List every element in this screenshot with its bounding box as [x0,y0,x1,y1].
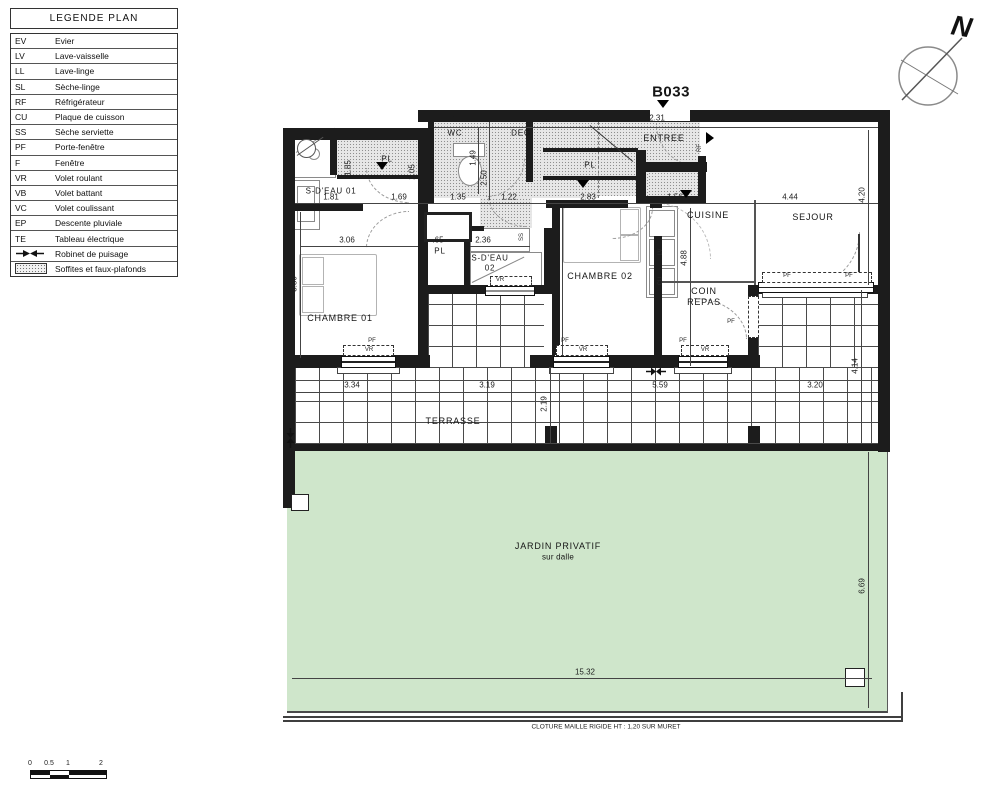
dim-label: 3.20 [807,381,823,390]
vr-shutter-sejour-bay [762,272,872,283]
dim-line [295,203,878,204]
vent-triangle-icon [376,162,388,170]
wall-right [878,110,890,452]
north-compass-icon: N [888,6,992,110]
vr-tag: VR [365,347,373,353]
wall-left [283,128,295,508]
scale-tick: 1 [66,760,70,767]
dim-line [434,127,878,128]
robinet-icon [11,249,55,258]
window-sill [674,367,732,374]
legend-row: PFPorte-fenêtre [11,140,177,155]
dim-label: 3.06 [339,236,355,245]
post [545,426,557,443]
wall [330,128,337,175]
room-label-chambre01: CHAMBRE 01 [307,313,373,323]
legend-row: VBVolet battant [11,186,177,201]
legend-row: SLSèche-linge [11,80,177,95]
legend-row: CUPlaque de cuisson [11,110,177,125]
pf-tag: PF [727,319,735,325]
scale-bar: 0 0.5 1 2 [26,760,116,784]
legend-row: EVEvier [11,34,177,49]
legend-abbr: EV [11,36,55,46]
vent-triangle-icon [577,180,589,188]
window-coin-repas [678,356,728,368]
pillow [302,257,324,285]
terrasse-tiles [295,368,878,444]
legend-abbr: VB [11,188,55,198]
legend-abbr: EP [11,218,55,228]
pf-tag: PF [679,338,687,344]
dim-line [868,130,869,285]
dim-label: 2.36 [475,236,491,245]
vent-triangle-icon [680,190,692,198]
hatch-icon [11,263,55,274]
dim-line [562,208,563,355]
legend-abbr: LV [11,51,55,61]
dim-line [550,368,551,444]
room-label-chambre02: CHAMBRE 02 [567,271,633,281]
vent-triangle-icon [706,132,714,144]
niche-box [424,212,472,242]
wall-coin-repas-right-a [748,285,758,296]
fence-line [283,720,903,722]
legend-row: VCVolet coulissant [11,201,177,216]
legend-abbr: SS [11,127,55,137]
dim-label: 3.34 [344,381,360,390]
window-sill [337,367,400,374]
legend-row: VRVolet roulant [11,171,177,186]
door-arc-chambre01 [366,211,409,248]
legend-row: LVLave-vaisselle [11,49,177,64]
legend-abbr: F [11,158,55,168]
room-label-wc: WC [448,129,463,138]
legend-row: SSSèche serviette [11,125,177,140]
pf-tag: PF [561,338,569,344]
legend-abbr: VC [11,203,55,213]
compass-north-label: N [949,9,975,43]
wall-thin-coin-sejour [754,200,756,285]
pillow [620,235,639,261]
pl-label: PL [584,161,595,170]
legend-row: Soffites et faux-plafonds [11,262,177,276]
wall-chambre02-left [552,208,560,355]
dim-label: 6.69 [858,578,867,594]
legend-row: FFenêtre [11,156,177,171]
room-label-sdeau01: S-D'EAU 01 [306,187,357,196]
vr-tag: VR [579,347,587,353]
dim-label: 3.19 [479,381,495,390]
legend-label: Volet battant [55,188,102,198]
pf-tag: PF [845,273,853,279]
dim-label: 4.14 [851,358,860,374]
legend-abbr: VR [11,173,55,183]
wall-terrasse-edge [283,444,890,451]
fence-line [901,692,903,721]
dim-line [861,290,862,444]
wall-thin-cuisine [660,281,755,283]
dim-label: 1.30 [444,114,460,123]
dim-line [295,392,878,393]
legend-label: Volet coulissant [55,203,114,213]
dim-label: 2.19 [540,396,549,412]
dim-line [489,122,490,200]
legend-label: Lave-vaisselle [55,51,109,61]
dim-label: 1.22 [501,193,517,202]
wall [543,148,638,152]
legend-label: Réfrigérateur [55,97,105,107]
wall-chambre02-right [654,236,662,368]
room-label-sdeau02: S-D'EAU [471,254,508,263]
fence-note: CLOTURE MAILLE RIGIDE HT : 1,20 SUR MURE… [531,724,680,731]
window-chambre01 [341,356,396,368]
dim-line [292,678,872,679]
scale-tick: 0.5 [44,760,54,767]
wall [543,176,638,180]
wall-coin-repas-right-b [748,336,758,368]
dim-label: 3.80 [290,276,299,292]
window-sill [549,367,614,374]
dim-line [868,452,869,708]
terrasse-tiles-middle [428,292,544,368]
dim-label: 1.49 [469,150,478,166]
legend-abbr: SL [11,82,55,92]
legend-row: Robinet de puisage [11,247,177,262]
dim-label: 4.20 [858,187,867,203]
legend-title: LEGENDE PLAN [10,8,178,29]
dim-label: 3.45 [535,114,551,123]
scale-tick: 0 [28,760,32,767]
window-sejour-bay [758,282,874,293]
entrance-marker-icon [657,100,669,108]
dim-line [300,212,301,358]
scale-bar-strip [30,770,107,779]
dim-label: 2.05 [408,164,417,180]
dim-label: .65 [432,236,443,245]
legend-label: Soffites et faux-plafonds [55,264,146,274]
dim-line [470,246,530,247]
legend-label: Sèche-linge [55,82,100,92]
wall [698,156,706,204]
wall [283,355,343,368]
legend-label: Sèche serviette [55,127,114,137]
legend-table: EVEvier LVLave-vaisselle LLLave-linge SL… [10,33,178,277]
post [748,426,760,443]
pf-tag: PF [783,273,791,279]
legend-row: TETableau électrique [11,231,177,246]
appliance-ss: SS [519,233,525,241]
window-chambre02 [553,356,610,368]
scale-tick: 2 [99,760,103,767]
pf-door-coin-repas-side [748,296,759,338]
legend-label: Volet roulant [55,173,102,183]
legend-label: Fenêtre [55,158,84,168]
wall [650,200,662,208]
dim-label: 15.32 [575,668,595,677]
appliance-lv: LV [658,249,664,256]
legend-row: LLLave-linge [11,64,177,79]
room-label-terrasse: TERRASSE [426,416,481,426]
robinet-puisage-icon [286,428,295,448]
pf-tag: PF [368,338,376,344]
room-label-jardin-sub: sur dalle [542,553,574,562]
wall [640,162,707,172]
dim-label: 2.31 [649,114,665,123]
room-label-repas: REPAS [687,297,721,307]
room-label-cuisine: CUISINE [687,210,729,220]
dim-label: 1.85 [344,160,353,176]
pl-label: PL [434,247,445,256]
legend-label: Porte-fenêtre [55,142,105,152]
room-label-deg: DEG [511,129,531,138]
legend-label: Evier [55,36,74,46]
dim-label: 5.20 [551,242,560,258]
legend-label: Robinet de puisage [55,249,128,259]
vr-tag: VR [701,347,709,353]
legend-label: Descente pluviale [55,218,122,228]
pillow [302,286,324,313]
appliance-cu: CU [658,277,664,286]
window-sdeau02 [485,286,535,296]
wall-chambre01-right [418,140,428,368]
wall [418,285,488,294]
room-label-sdeau02-num: 02 [485,264,496,273]
legend-abbr: LL [11,66,55,76]
wall-wc-left [428,122,434,204]
wall-sdeau02-right [544,228,552,290]
dim-label: 4.44 [782,193,798,202]
legend-label: Tableau électrique [55,234,124,244]
plan-id-label: B033 [652,84,690,101]
ep-box [291,494,309,511]
terrasse-tiles-right [758,294,878,368]
vr-tag: VR [496,277,504,283]
dim-line [300,246,418,247]
legend-panel: LEGENDE PLAN EVEvier LVLave-vaisselle LL… [10,8,178,277]
legend-label: Plaque de cuisson [55,112,124,122]
legend-abbr: RF [11,97,55,107]
dim-label: 4.49 [780,114,796,123]
dim-label: 1.35 [450,193,466,202]
legend-row: EPDescente pluviale [11,216,177,231]
room-label-sejour: SEJOUR [792,212,833,222]
legend-row: RFRéfrigérateur [11,95,177,110]
fence-line [283,716,903,718]
legend-abbr: PF [11,142,55,152]
robinet-puisage-icon [646,367,666,376]
wall-sdeau01-bottom [295,203,363,211]
dim-label: 5.59 [652,381,668,390]
floor-plan-page: 1.30 3.45 2.31 4.49 1.81 1.69 1.35 1.22 … [0,0,996,800]
dim-label: 2.50 [480,170,489,186]
appliance-rf: RF [697,144,703,152]
room-label-entree: ENTREE [643,133,684,143]
dim-label: 2.83 [580,193,596,202]
legend-label: Lave-linge [55,66,94,76]
dim-label: 1.69 [391,193,407,202]
room-label-coin: COIN [691,286,717,296]
legend-abbr: CU [11,112,55,122]
room-label-jardin: JARDIN PRIVATIF [515,541,601,551]
legend-abbr: TE [11,234,55,244]
dim-label: 4.88 [680,250,689,266]
